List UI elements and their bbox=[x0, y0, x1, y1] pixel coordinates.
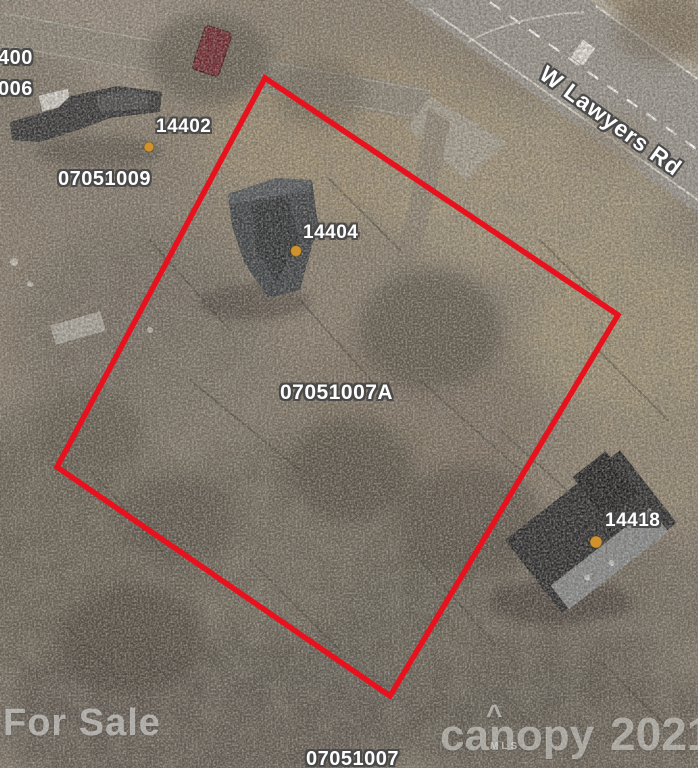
address-label-14402: 14402 bbox=[156, 117, 211, 136]
parcel-label-07051007A: 07051007A bbox=[280, 382, 393, 403]
canopy-year-text: 2021 bbox=[610, 708, 698, 760]
parcel-label-006: 006 bbox=[0, 79, 33, 99]
address-marker-14404 bbox=[291, 246, 302, 257]
aerial-parcel-map: 400 006 14402 07051009 14404 07051007A 1… bbox=[0, 0, 698, 768]
parcel-label-400: 400 bbox=[0, 48, 33, 68]
parcel-label-07051009: 07051009 bbox=[58, 169, 151, 189]
canopy-mls-watermark: canopy2021 ^ MLS bbox=[440, 711, 698, 758]
address-marker-14402 bbox=[144, 142, 154, 152]
address-label-14404: 14404 bbox=[303, 223, 358, 242]
canopy-brand-text: canopy bbox=[440, 711, 594, 760]
for-sale-watermark: For Sale bbox=[3, 704, 161, 742]
address-marker-14418 bbox=[590, 536, 602, 548]
address-label-14418: 14418 bbox=[605, 511, 660, 530]
canopy-mls-subtext: MLS bbox=[490, 742, 520, 752]
parcel-label-07051007: 07051007 bbox=[306, 749, 399, 768]
canopy-roof-icon: ^ bbox=[486, 701, 502, 729]
